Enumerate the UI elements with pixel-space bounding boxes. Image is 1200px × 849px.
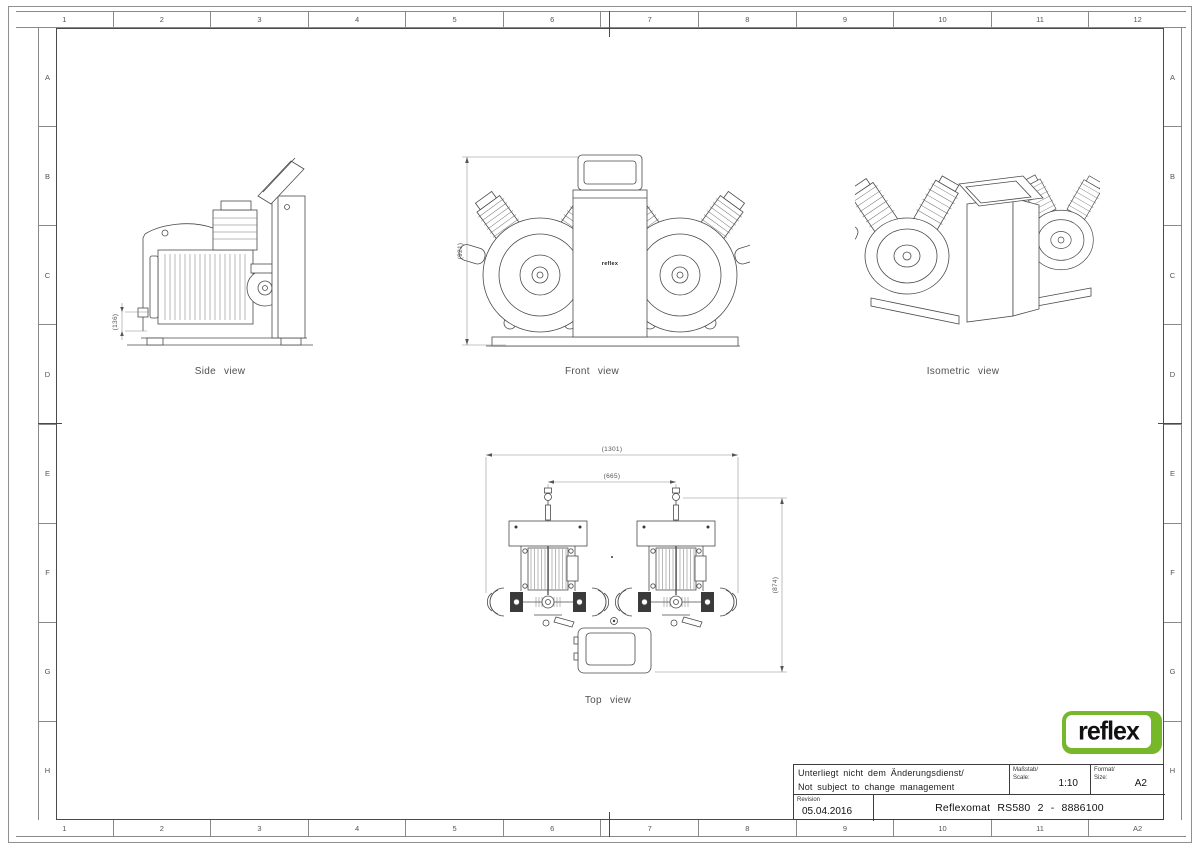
reflex-logo-text: reflex [1078,716,1139,746]
grid-col-label: 2 [114,12,212,27]
grid-col-label: 6 [504,820,602,836]
front-unit-brand-label: reflex [602,261,619,267]
grid-row-label: B [39,127,56,226]
grid-row-label: B [1164,127,1181,226]
grid-col-label: 5 [406,820,504,836]
grid-col-label: 8 [699,12,797,27]
scale-value: 1:10 [1059,778,1078,789]
isometric-view-drawing [855,140,1100,340]
grid-band-right: A B C D E F G H [1164,28,1182,820]
grid-row-label: E [1164,425,1181,524]
grid-col-label: 11 [992,12,1090,27]
title-block-format: Format/ Size: A2 [1090,765,1165,794]
grid-col-label: 4 [309,12,407,27]
side-cylinder-head [213,210,257,250]
grid-sheet-size-label: A2 [1089,820,1186,836]
grid-row-label: C [39,226,56,325]
center-mark-bottom [609,812,610,837]
isometric-view-caption: Isometric view [893,366,1033,377]
grid-row-label: H [39,722,56,820]
side-view-drawing: (136) [95,140,325,355]
grid-row-label: H [1164,722,1181,820]
center-mark-left [38,423,62,424]
top-dim-center-label: (665) [604,473,621,480]
grid-row-label: D [39,325,56,424]
top-view-caption: Top view [538,695,678,706]
grid-row-label: E [39,425,56,524]
grid-row-label: G [1164,623,1181,722]
grid-col-label: 8 [699,820,797,836]
center-mark-right [1158,423,1182,424]
grid-col-label: 10 [894,12,992,27]
revision-date: 05.04.2016 [802,806,852,817]
grid-col-label: 1 [16,12,114,27]
title-block-revision: Revision 05.04.2016 [794,794,873,821]
side-dim-label: (136) [112,314,119,331]
side-control-tower [272,196,305,338]
front-dim-label: (921) [457,243,464,260]
grid-col-label: 11 [992,820,1090,836]
grid-col-label: 6 [504,12,602,27]
title-block-disclaimer: Unterliegt nicht dem Änderungsdienst/ No… [794,765,1009,794]
format-label-en: Size: [1094,775,1165,783]
grid-row-label: G [39,623,56,722]
top-display-panel [586,633,635,665]
top-left-unit [487,488,608,627]
side-machine [127,158,313,345]
front-base-plate [492,337,738,346]
grid-col-label: 12 [1089,12,1186,27]
drawing-title: Reflexomat RS580 2 - 8886100 [874,795,1165,821]
reflex-logo-inner: reflex [1066,715,1151,748]
disclaimer-line-en: Not subject to change management [798,781,1009,795]
top-dim-depth-label: (874) [772,577,779,594]
grid-row-label: D [1164,325,1181,424]
grid-col-label: 3 [211,12,309,27]
title-block: Unterliegt nicht dem Änderungsdienst/ No… [793,764,1164,820]
disclaimer-line-de: Unterliegt nicht dem Änderungsdienst/ [798,767,1009,781]
grid-col-label: 9 [797,12,895,27]
revision-label: Revision [794,795,873,805]
grid-col-label: 1 [16,820,114,836]
scale-label-de: Maßstab/ [1013,767,1090,775]
grid-row-label: A [1164,28,1181,127]
grid-col-label: 7 [601,820,699,836]
top-dim-overall-label: (1301) [602,446,623,453]
grid-band-left: A B C D E F G H [38,28,56,820]
grid-col-label: 10 [894,820,992,836]
iso-base-skid-left [871,298,959,324]
grid-col-label: 5 [406,12,504,27]
grid-row-label: C [1164,226,1181,325]
drawing-sheet: { "sheet": { "cols_top": ["1","2","3","4… [0,0,1200,849]
grid-col-label: 9 [797,820,895,836]
grid-band-bottom: 1 2 3 4 5 6 7 8 9 10 11 A2 [16,820,1186,837]
top-view-drawing: (1301) (665) (874) [465,435,800,685]
grid-col-label: 4 [309,820,407,836]
reflex-logo: reflex [1062,711,1162,754]
front-view-drawing: reflex (921) [450,145,750,355]
side-motor [158,250,253,324]
format-label-de: Format/ [1094,767,1165,775]
front-view-caption: Front view [522,366,662,377]
title-block-drawing-title: Reflexomat RS580 2 - 8886100 [873,794,1165,821]
center-mark-top [609,11,610,37]
grid-row-label: A [39,28,56,127]
iso-cabinet-front-face [967,198,1013,322]
grid-col-label: 7 [601,12,699,27]
grid-band-top: 1 2 3 4 5 6 7 8 9 10 11 12 [16,11,1186,28]
iso-cabinet-side-face [1013,198,1039,316]
grid-col-label: 2 [114,820,212,836]
top-right-unit [615,488,736,627]
top-dimension-center-distance: (665) [548,473,676,492]
grid-row-label: F [1164,524,1181,623]
side-view-caption: Side view [150,366,290,377]
grid-col-label: 3 [211,820,309,836]
title-block-scale: Maßstab/ Scale: 1:10 [1009,765,1090,794]
iso-front-compressor [855,173,963,294]
grid-row-label: F [39,524,56,623]
format-value: A2 [1135,778,1147,789]
scale-label-en: Scale: [1013,775,1090,783]
